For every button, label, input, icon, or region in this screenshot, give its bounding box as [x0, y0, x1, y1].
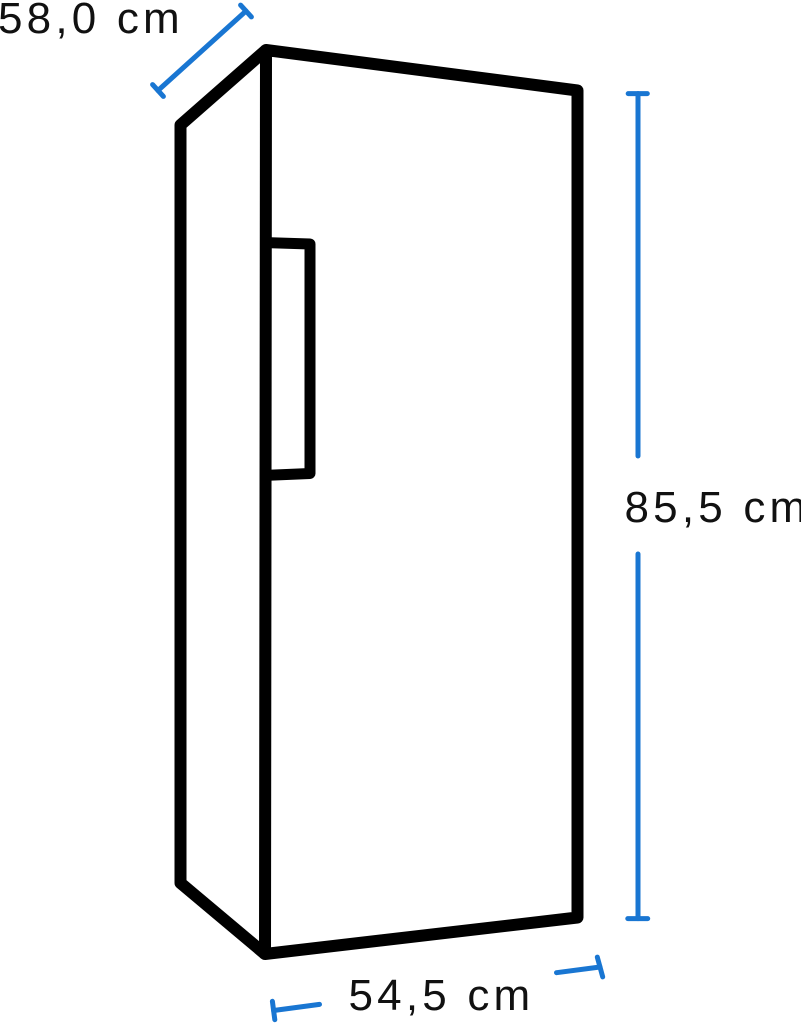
svg-text:58,0 cm: 58,0 cm: [0, 0, 184, 43]
svg-text:85,5 cm: 85,5 cm: [625, 483, 801, 532]
svg-text:54,5 cm: 54,5 cm: [349, 971, 535, 1020]
